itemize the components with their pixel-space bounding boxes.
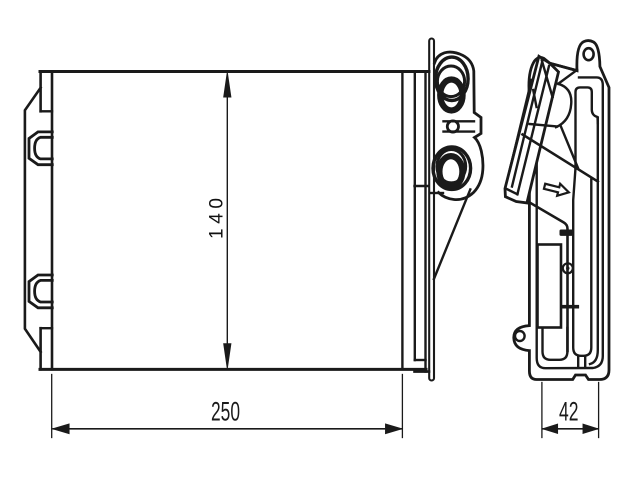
svg-text:140: 140: [206, 198, 227, 239]
svg-text:42: 42: [559, 397, 579, 427]
svg-text:250: 250: [211, 397, 240, 427]
